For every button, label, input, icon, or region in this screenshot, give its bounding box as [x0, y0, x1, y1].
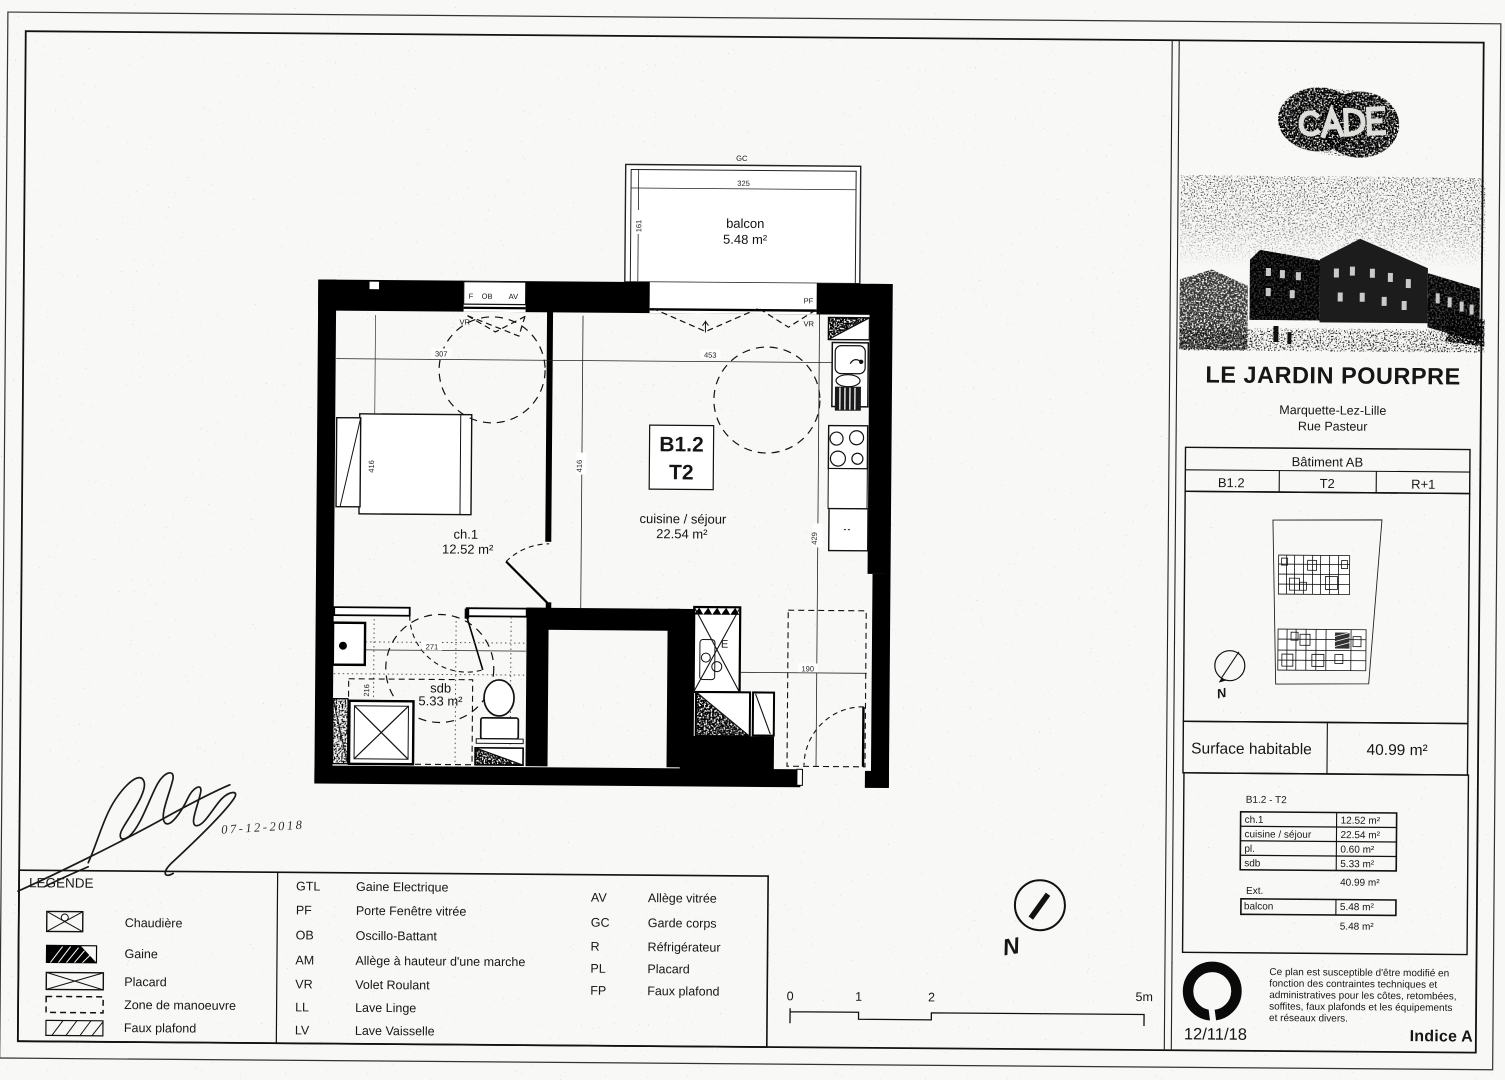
svg-text:cuisine / séjour: cuisine / séjour [640, 511, 727, 527]
svg-text:Placard: Placard [124, 975, 167, 989]
svg-text:22.54 m²: 22.54 m² [656, 526, 708, 541]
svg-text:OB: OB [296, 928, 314, 942]
svg-text:Placard: Placard [647, 962, 690, 976]
svg-text:Garde corps: Garde corps [648, 916, 717, 931]
svg-text:Réfrigérateur: Réfrigérateur [648, 940, 721, 955]
svg-text:22.54 m²: 22.54 m² [1340, 830, 1380, 841]
svg-text:271: 271 [426, 642, 439, 651]
svg-text:325: 325 [737, 179, 750, 188]
svg-text:ch.1: ch.1 [453, 527, 478, 542]
svg-text:PF: PF [804, 296, 814, 305]
svg-text:T2: T2 [669, 461, 694, 484]
svg-text:B1.2: B1.2 [659, 433, 704, 456]
svg-text:12/11/18: 12/11/18 [1184, 1025, 1247, 1043]
svg-text:cuisine / séjour: cuisine / séjour [1244, 829, 1311, 841]
svg-text:12.52 m²: 12.52 m² [1341, 816, 1381, 827]
svg-text:GC: GC [736, 154, 748, 163]
svg-text:Faux plafond: Faux plafond [124, 1021, 196, 1036]
svg-text:VR: VR [803, 319, 814, 328]
svg-text:190: 190 [801, 664, 814, 673]
svg-text:0: 0 [787, 989, 794, 1003]
svg-text:AV: AV [591, 891, 608, 905]
svg-text:5.33 m²: 5.33 m² [1340, 859, 1375, 870]
svg-text:Ext.: Ext. [1246, 886, 1263, 897]
svg-text:5.33 m²: 5.33 m² [418, 693, 463, 708]
svg-text:0.60 m²: 0.60 m² [1340, 845, 1375, 856]
svg-text:soffites, faux plafonds et les: soffites, faux plafonds et les équipemen… [1269, 1001, 1452, 1013]
svg-text:416: 416 [367, 460, 376, 473]
svg-text:429: 429 [810, 532, 819, 545]
svg-text:GTL: GTL [296, 879, 320, 893]
svg-text:Faux plafond: Faux plafond [647, 984, 719, 999]
svg-text:1: 1 [855, 990, 862, 1004]
svg-text:5.48 m²: 5.48 m² [1340, 922, 1375, 933]
svg-text:LL: LL [295, 1000, 309, 1014]
svg-text:administratives pour les côtes: administratives pour les côtes, retombée… [1269, 990, 1456, 1002]
svg-text:R: R [591, 940, 600, 954]
svg-text:Surface habitable: Surface habitable [1191, 740, 1312, 758]
svg-text:216: 216 [362, 684, 371, 697]
svg-text:453: 453 [704, 351, 717, 360]
svg-text:T2: T2 [1320, 476, 1335, 491]
svg-text:LE JARDIN POURPRE: LE JARDIN POURPRE [1205, 361, 1460, 389]
svg-text:AV: AV [509, 292, 519, 301]
svg-text:PL: PL [590, 962, 605, 976]
svg-text:Allège à hauteur d'une marche: Allège à hauteur d'une marche [355, 954, 525, 969]
svg-text:Rue Pasteur: Rue Pasteur [1298, 419, 1368, 434]
svg-text:R+1: R+1 [1411, 477, 1435, 492]
svg-text:LEGENDE: LEGENDE [29, 875, 94, 891]
svg-text:FP: FP [590, 984, 606, 998]
svg-text:161: 161 [634, 220, 643, 233]
svg-text:Porte Fenêtre vitrée: Porte Fenêtre vitrée [356, 904, 467, 919]
svg-text:5.48 m²: 5.48 m² [723, 232, 768, 247]
svg-text:ch.1: ch.1 [1245, 815, 1264, 826]
svg-text:12.52 m²: 12.52 m² [442, 541, 494, 556]
svg-text:Allège vitrée: Allège vitrée [648, 891, 717, 906]
svg-text:Gaine Electrique: Gaine Electrique [356, 880, 449, 895]
svg-text:PF: PF [296, 903, 312, 917]
svg-text:E: E [721, 639, 728, 651]
svg-text:Ce plan est susceptible d'être: Ce plan est susceptible d'être modifié e… [1269, 967, 1449, 979]
svg-text:GC: GC [591, 916, 610, 930]
svg-text:Lave Vaisselle: Lave Vaisselle [355, 1024, 435, 1039]
svg-text:Oscillo-Battant: Oscillo-Battant [356, 929, 438, 944]
svg-text:Lave Linge: Lave Linge [355, 1001, 416, 1015]
svg-text:416: 416 [575, 460, 584, 473]
svg-text:pl.: pl. [1244, 844, 1255, 855]
svg-text:5m: 5m [1135, 990, 1152, 1004]
svg-text:sdb: sdb [1244, 858, 1261, 869]
svg-text:2: 2 [928, 990, 935, 1004]
svg-text:Bâtiment AB: Bâtiment AB [1292, 454, 1364, 470]
svg-text:LV: LV [295, 1023, 310, 1037]
svg-text:balcon: balcon [1244, 901, 1274, 912]
svg-text:Gaine: Gaine [124, 947, 158, 961]
svg-text:Volet Roulant: Volet Roulant [355, 978, 430, 993]
svg-text:40.99 m²: 40.99 m² [1366, 742, 1427, 759]
svg-text:Zone de manoeuvre: Zone de manoeuvre [124, 998, 236, 1013]
svg-text:Chaudière: Chaudière [125, 916, 183, 930]
svg-text:AM: AM [295, 953, 314, 967]
svg-text:fonction des contraintes techn: fonction des contraintes techniques et [1269, 978, 1437, 990]
svg-text:Marquette-Lez-Lille: Marquette-Lez-Lille [1279, 403, 1386, 418]
svg-text:Indice A: Indice A [1410, 1028, 1474, 1045]
svg-text:balcon: balcon [726, 216, 764, 231]
svg-text:OB: OB [482, 292, 493, 301]
svg-text:307: 307 [435, 349, 448, 358]
svg-text:40.99 m²: 40.99 m² [1340, 878, 1380, 889]
svg-text:B1.2: B1.2 [1218, 475, 1245, 490]
svg-text:5.48 m²: 5.48 m² [1340, 902, 1375, 913]
svg-text:B1.2 - T2: B1.2 - T2 [1246, 795, 1287, 806]
svg-text:VR: VR [295, 977, 312, 991]
svg-text:F: F [469, 292, 474, 301]
svg-text:et réseaux divers.: et réseaux divers. [1269, 1013, 1348, 1025]
